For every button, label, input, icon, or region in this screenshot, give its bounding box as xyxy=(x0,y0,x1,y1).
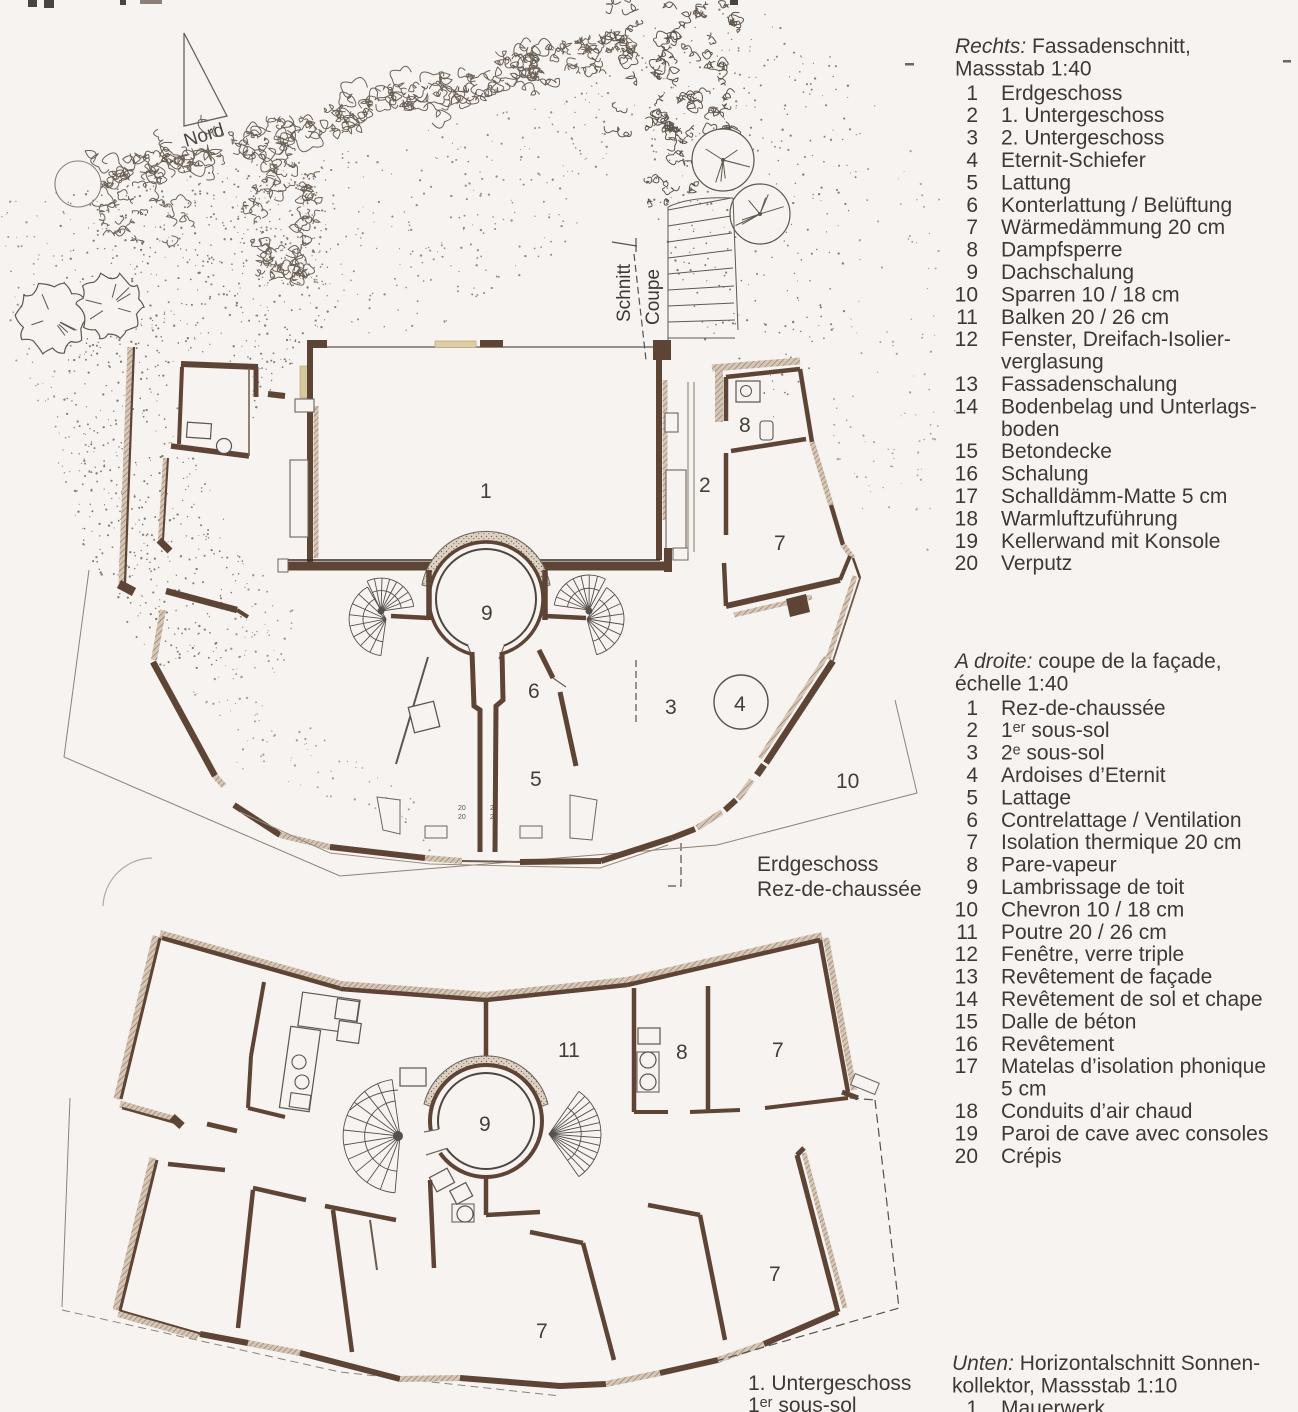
svg-text:Wärmedämmung 20 cm: Wärmedämmung 20 cm xyxy=(1001,216,1225,239)
svg-text:17: 17 xyxy=(955,485,978,508)
svg-text:7: 7 xyxy=(536,1320,548,1343)
svg-text:boden: boden xyxy=(1001,418,1059,441)
svg-text:16: 16 xyxy=(955,463,978,486)
svg-text:Conduits d’air chaud: Conduits d’air chaud xyxy=(1001,1100,1192,1123)
svg-text:7: 7 xyxy=(772,1039,784,1062)
svg-text:11: 11 xyxy=(956,306,978,329)
svg-text:Erdgeschoss: Erdgeschoss xyxy=(757,853,878,876)
svg-text:Dalle de béton: Dalle de béton xyxy=(1001,1010,1136,1033)
svg-text:6: 6 xyxy=(966,809,978,832)
svg-text:19: 19 xyxy=(955,530,978,553)
svg-text:2: 2 xyxy=(699,474,711,497)
svg-text:Coupe: Coupe xyxy=(643,269,664,325)
svg-text:Massstab 1:40: Massstab 1:40 xyxy=(955,57,1092,80)
svg-text:Fenêtre, verre triple: Fenêtre, verre triple xyxy=(1001,943,1184,966)
svg-text:3: 3 xyxy=(665,696,677,719)
svg-text:1. Untergeschoss: 1. Untergeschoss xyxy=(748,1372,911,1395)
svg-text:Paroi de cave avec consoles: Paroi de cave avec consoles xyxy=(1001,1122,1268,1145)
svg-text:3: 3 xyxy=(966,127,978,150)
svg-text:8: 8 xyxy=(966,239,978,262)
svg-text:Pare-vapeur: Pare-vapeur xyxy=(1001,854,1117,877)
svg-text:20: 20 xyxy=(955,1145,978,1168)
svg-text:10: 10 xyxy=(955,283,978,306)
svg-text:Chevron 10 / 18 cm: Chevron 10 / 18 cm xyxy=(1001,898,1184,921)
svg-text:11: 11 xyxy=(558,1039,580,1062)
svg-text:Dachschalung: Dachschalung xyxy=(1001,261,1134,284)
svg-text:Matelas d’isolation phonique: Matelas d’isolation phonique xyxy=(1001,1055,1266,1078)
svg-text:9: 9 xyxy=(481,602,493,625)
svg-text:10: 10 xyxy=(836,770,859,793)
svg-text:Schnitt: Schnitt xyxy=(614,263,635,322)
svg-text:Revêtement de façade: Revêtement de façade xyxy=(1001,966,1212,989)
svg-text:12: 12 xyxy=(955,943,978,966)
svg-text:Balken 20 / 26 cm: Balken 20 / 26 cm xyxy=(1001,306,1169,329)
svg-text:14: 14 xyxy=(955,395,979,418)
svg-text:5 cm: 5 cm xyxy=(1001,1078,1047,1101)
svg-text:13: 13 xyxy=(955,966,978,989)
svg-text:1: 1 xyxy=(966,82,978,105)
svg-text:Lattung: Lattung xyxy=(1001,171,1071,194)
svg-text:Erdgeschoss: Erdgeschoss xyxy=(1001,82,1122,105)
svg-text:4: 4 xyxy=(966,764,978,787)
svg-text:Revêtement: Revêtement xyxy=(1001,1033,1114,1056)
svg-text:3: 3 xyxy=(966,742,978,765)
svg-text:6: 6 xyxy=(966,194,978,217)
svg-text:Rechts: Fassadenschnitt,: Rechts: Fassadenschnitt, xyxy=(955,35,1191,58)
svg-text:Konterlattung / Belüftung: Konterlattung / Belüftung xyxy=(1001,194,1232,217)
svg-text:18: 18 xyxy=(955,507,978,530)
svg-text:8: 8 xyxy=(966,854,978,877)
svg-text:2. Untergeschoss: 2. Untergeschoss xyxy=(1001,127,1164,150)
svg-text:Unten: Horizontalschnitt Sonne: Unten: Horizontalschnitt Sonnen- xyxy=(952,1352,1260,1375)
svg-text:4: 4 xyxy=(734,693,746,716)
svg-text:12: 12 xyxy=(955,328,978,351)
svg-text:6: 6 xyxy=(528,680,540,703)
svg-text:1: 1 xyxy=(966,1397,978,1412)
svg-text:1ᵉʳ sous-sol: 1ᵉʳ sous-sol xyxy=(748,1394,857,1412)
svg-text:1: 1 xyxy=(966,697,978,720)
svg-text:Kellerwand mit Konsole: Kellerwand mit Konsole xyxy=(1001,530,1220,553)
svg-text:9: 9 xyxy=(479,1113,491,1136)
svg-text:Warmluftzuführung: Warmluftzuführung xyxy=(1001,507,1178,530)
svg-text:16: 16 xyxy=(955,1033,978,1056)
svg-text:2: 2 xyxy=(966,104,978,127)
svg-text:Schalldämm-Matte 5 cm: Schalldämm-Matte 5 cm xyxy=(1001,485,1227,508)
svg-text:Betondecke: Betondecke xyxy=(1001,440,1112,463)
svg-text:Revêtement de sol et chape: Revêtement de sol et chape xyxy=(1001,988,1263,1011)
svg-text:A droite: coupe de la façade,: A droite: coupe de la façade, xyxy=(953,650,1222,673)
svg-text:13: 13 xyxy=(955,373,978,396)
svg-text:1: 1 xyxy=(480,480,492,503)
svg-text:Bodenbelag und Unterlags-: Bodenbelag und Unterlags- xyxy=(1001,395,1257,418)
svg-text:échelle 1:40: échelle 1:40 xyxy=(955,672,1068,695)
svg-text:Mauerwerk: Mauerwerk xyxy=(1001,1397,1105,1412)
svg-text:9: 9 xyxy=(966,261,978,284)
svg-text:Rez-de-chaussée: Rez-de-chaussée xyxy=(757,878,922,901)
svg-text:1ᵉʳ sous-sol: 1ᵉʳ sous-sol xyxy=(1001,719,1110,742)
svg-text:Lambrissage de toit: Lambrissage de toit xyxy=(1001,876,1184,899)
svg-text:9: 9 xyxy=(966,876,978,899)
svg-text:Isolation thermique 20 cm: Isolation thermique 20 cm xyxy=(1001,831,1241,854)
svg-text:18: 18 xyxy=(955,1100,978,1123)
svg-text:Sparren 10 / 18 cm: Sparren 10 / 18 cm xyxy=(1001,283,1180,306)
svg-text:kollektor, Massstab 1:10: kollektor, Massstab 1:10 xyxy=(952,1375,1177,1398)
svg-text:Rez-de-chaussée: Rez-de-chaussée xyxy=(1001,697,1166,720)
svg-text:Lattage: Lattage xyxy=(1001,786,1071,809)
svg-text:Dampfsperre: Dampfsperre xyxy=(1001,239,1122,262)
svg-text:Crépis: Crépis xyxy=(1001,1145,1062,1168)
svg-text:Poutre 20 / 26 cm: Poutre 20 / 26 cm xyxy=(1001,921,1167,944)
svg-text:7: 7 xyxy=(966,216,978,239)
svg-text:4: 4 xyxy=(966,149,978,172)
svg-text:5: 5 xyxy=(966,171,978,194)
svg-text:7: 7 xyxy=(966,831,978,854)
svg-text:7: 7 xyxy=(774,532,786,555)
svg-text:20: 20 xyxy=(458,805,466,812)
svg-text:11: 11 xyxy=(956,921,978,944)
svg-text:20: 20 xyxy=(458,814,466,821)
svg-text:Fassadenschalung: Fassadenschalung xyxy=(1001,373,1177,396)
svg-text:2: 2 xyxy=(966,719,978,742)
svg-text:7: 7 xyxy=(769,1263,781,1286)
svg-text:8: 8 xyxy=(676,1041,688,1064)
svg-text:Verputz: Verputz xyxy=(1001,552,1072,575)
svg-text:14: 14 xyxy=(955,988,979,1011)
svg-text:verglasung: verglasung xyxy=(1001,351,1104,374)
svg-text:10: 10 xyxy=(955,898,978,921)
svg-text:20: 20 xyxy=(955,552,978,575)
svg-text:2ᵉ sous-sol: 2ᵉ sous-sol xyxy=(1001,742,1105,765)
svg-text:Eternit-Schiefer: Eternit-Schiefer xyxy=(1001,149,1146,172)
svg-text:Fenster, Dreifach-Isolier-: Fenster, Dreifach-Isolier- xyxy=(1001,328,1231,351)
svg-text:5: 5 xyxy=(530,768,542,791)
svg-text:17: 17 xyxy=(955,1055,978,1078)
svg-text:Contrelattage / Ventilation: Contrelattage / Ventilation xyxy=(1001,809,1242,832)
svg-text:Ardoises d’Eternit: Ardoises d’Eternit xyxy=(1001,764,1166,787)
svg-text:15: 15 xyxy=(955,1010,978,1033)
svg-text:8: 8 xyxy=(739,414,751,437)
svg-text:1. Untergeschoss: 1. Untergeschoss xyxy=(1001,104,1164,127)
svg-text:19: 19 xyxy=(955,1122,978,1145)
svg-text:5: 5 xyxy=(966,786,978,809)
svg-text:Schalung: Schalung xyxy=(1001,463,1089,486)
svg-text:15: 15 xyxy=(955,440,978,463)
